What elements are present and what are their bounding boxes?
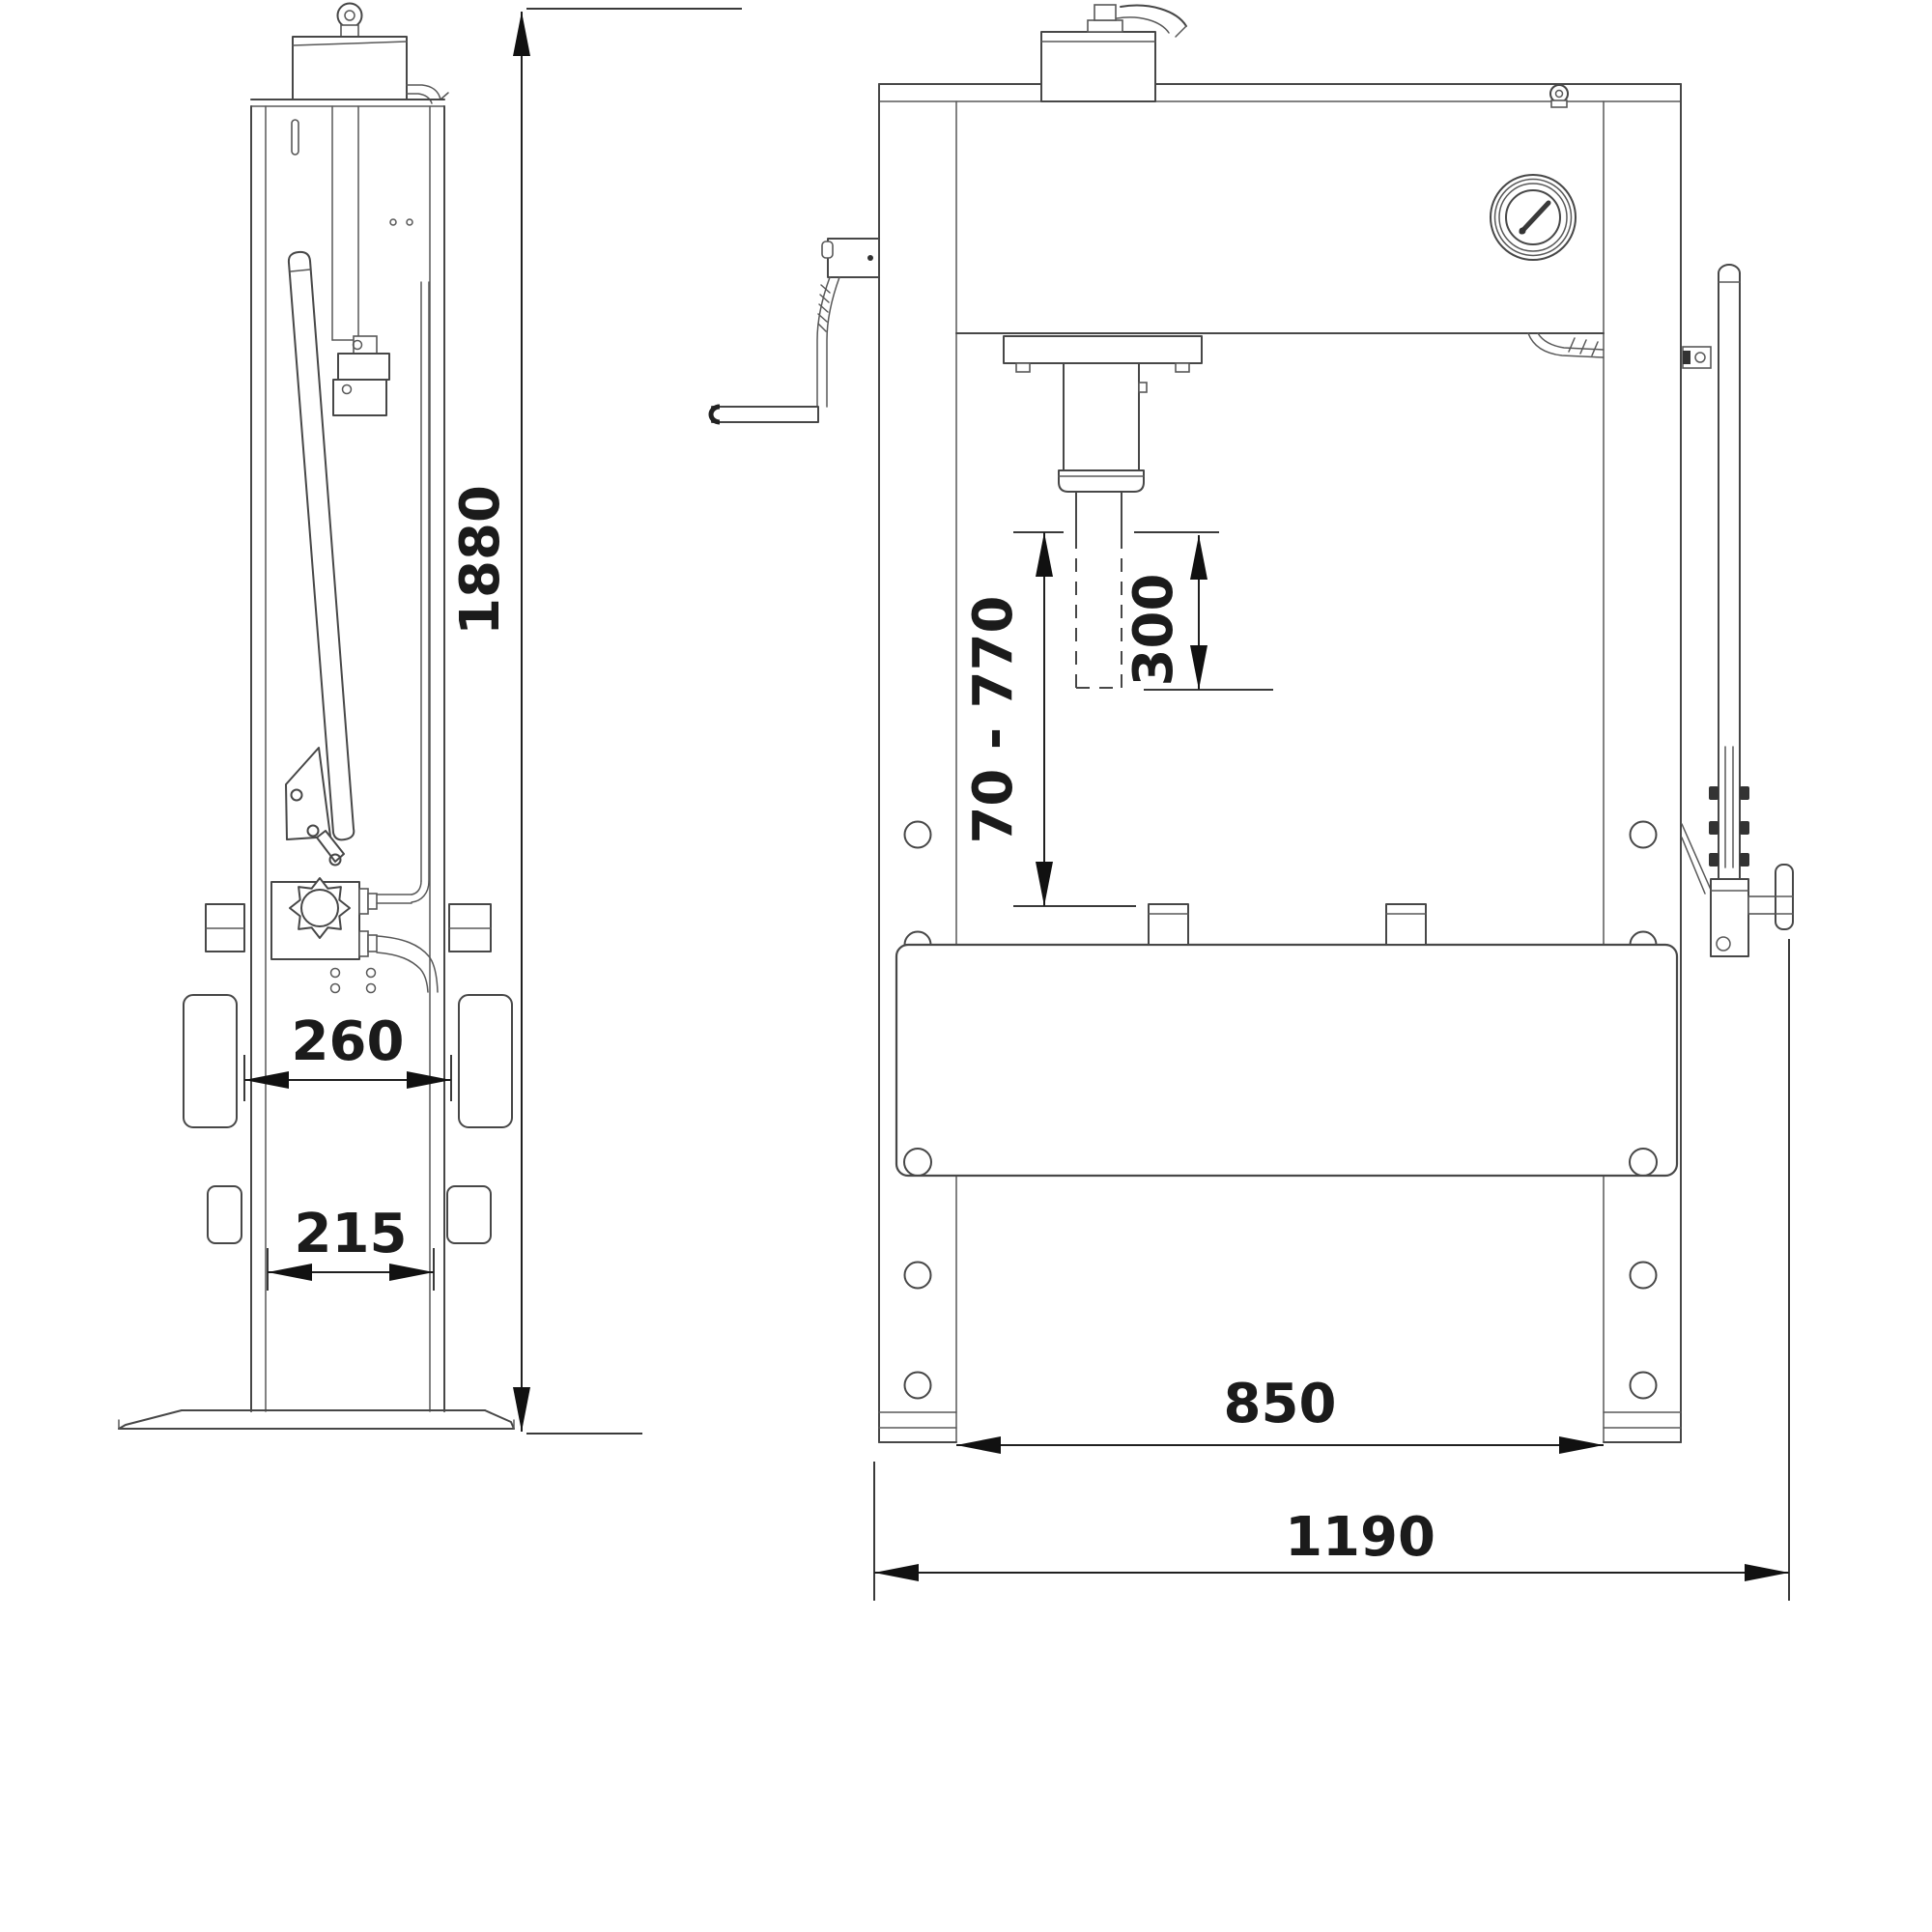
t-screw-shaft — [1748, 896, 1776, 914]
arrowhead — [874, 1564, 919, 1581]
dimension-inner-width: 850 — [956, 1373, 1604, 1454]
cylinder-flange — [1004, 336, 1202, 363]
arrowhead — [956, 1436, 1001, 1454]
crank-grip — [712, 407, 818, 422]
table-plate-side-left — [184, 995, 237, 1127]
dimension-overall-height: 1880 — [449, 9, 742, 1434]
cylinder-body — [1064, 363, 1139, 470]
valve-fitting — [354, 336, 377, 354]
relief-pipe — [407, 85, 440, 99]
eyebolt-front — [1550, 85, 1568, 107]
dim-label-1880: 1880 — [449, 485, 512, 636]
release-knob — [290, 878, 350, 938]
beam-hose — [1528, 333, 1604, 357]
arrowhead — [1036, 532, 1053, 577]
table-plate-side-right — [459, 995, 512, 1127]
crank-handle — [711, 239, 879, 422]
cylinder-side — [332, 106, 358, 340]
pump-hose — [377, 936, 438, 992]
filler-cap — [1088, 20, 1122, 32]
cylinder-collar — [1059, 470, 1144, 492]
pressure-gauge — [1491, 175, 1576, 260]
arrowhead — [513, 1387, 530, 1432]
work-table — [896, 904, 1677, 1176]
base-foot-side — [119, 1410, 514, 1429]
front-view — [711, 5, 1793, 1442]
lever-pivot-plate — [286, 748, 330, 839]
arrowhead — [1036, 862, 1053, 906]
v-block-left — [1149, 904, 1188, 945]
dim-label-70-770: 70 - 770 — [962, 595, 1025, 843]
press-technical-drawing: 260 215 1880 — [0, 0, 1932, 1932]
arrowhead — [513, 12, 530, 56]
gauge-needle — [1521, 203, 1548, 232]
arrowhead — [1190, 645, 1207, 690]
v-block-right — [1386, 904, 1426, 945]
dimension-column-depth: 215 — [268, 1203, 434, 1291]
release-lever — [1121, 6, 1186, 26]
rod-brace — [1682, 824, 1711, 890]
reservoir-side — [293, 37, 407, 99]
dimension-table-plate-spacing: 260 — [244, 1010, 451, 1101]
dimension-ram-stroke: 300 — [1122, 532, 1273, 690]
arrowhead — [1745, 1564, 1789, 1581]
arrowhead — [389, 1264, 434, 1281]
dim-label-1190: 1190 — [1285, 1506, 1435, 1569]
oil-reservoir — [1041, 5, 1186, 101]
arrowhead — [1559, 1436, 1604, 1454]
arrowhead — [1190, 535, 1207, 580]
lower-bracket-right — [447, 1186, 491, 1243]
pump-mount — [338, 354, 389, 380]
eyebolt-base-side — [341, 25, 358, 37]
dim-label-260: 260 — [292, 1010, 405, 1073]
dim-label-300: 300 — [1122, 574, 1185, 687]
arrowhead — [268, 1264, 312, 1281]
column-slot — [292, 120, 298, 155]
dim-label-215: 215 — [295, 1203, 408, 1265]
handle-rod — [1682, 265, 1793, 956]
dim-label-850: 850 — [1224, 1373, 1337, 1435]
dimension-working-range: 70 - 770 — [962, 532, 1136, 906]
eyebolt-ring-side — [338, 4, 362, 28]
drawing-canvas: 260 215 1880 — [0, 0, 1932, 1932]
lower-bracket-left — [208, 1186, 241, 1243]
